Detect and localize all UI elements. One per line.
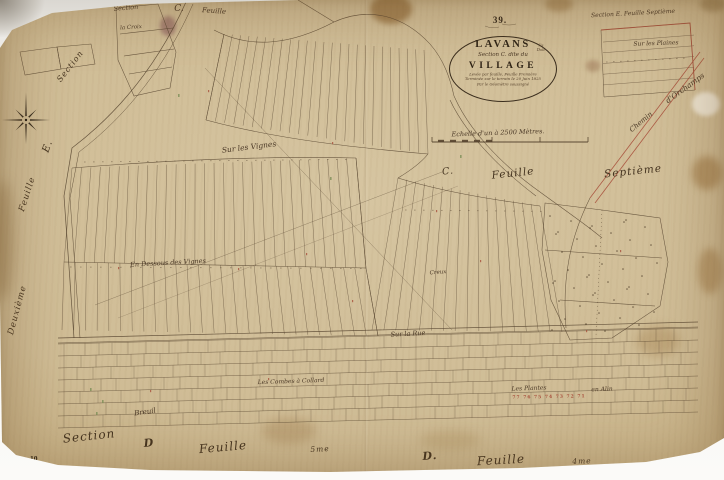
place-name: VILLAGE xyxy=(450,62,556,72)
plate-number: 10 xyxy=(30,454,38,463)
placename-sur-les-vignes: Sur les Vignes xyxy=(221,139,276,155)
placename-en-dessous-des-vignes: En Dessous des Vignes xyxy=(130,257,206,268)
parcel-numbers-red: 77 76 75 74 73 72 71 xyxy=(512,394,585,400)
placename-la-croix: la Croix xyxy=(120,23,142,31)
placename-les-plantes: Les Plantes xyxy=(511,384,546,392)
neighbor-sheet-left-feuille: Feuille xyxy=(17,175,38,212)
placename-creux: Creux xyxy=(429,268,446,276)
placename-en-alin: en Alin xyxy=(591,385,613,393)
neighbor-sheet-top-c: C. xyxy=(174,3,183,14)
neighbor-sheet-bottom-left-feuille: Feuille xyxy=(198,438,247,456)
neighbor-sheet-mid-septieme: Septième xyxy=(603,162,662,180)
neighbor-sheet-bottom-right-d: D. xyxy=(422,449,438,463)
cartouche-notes: Levée par feuille, Feuille Première Term… xyxy=(455,72,551,87)
neighbor-sheet-bottom-right-4me: 4me xyxy=(572,456,592,466)
neighbor-sheet-left-e: E. xyxy=(39,138,55,154)
placename-les-combes-a-collard: Les Combes à Collard xyxy=(258,376,325,385)
neighbor-sheet-bottom-left-d: D xyxy=(143,436,155,450)
neighbor-sheet-bottom-left-section: Section xyxy=(62,426,116,445)
paper-sheet: SectionC.FeuilleSection E. Feuille Septi… xyxy=(0,0,724,480)
commune-name: LAVANS lès Dole xyxy=(450,40,556,51)
map-label-layer: SectionC.FeuilleSection E. Feuille Septi… xyxy=(0,0,724,480)
neighbor-sheet-top-feuille: Feuille xyxy=(202,6,226,16)
sheet-number: 39. xyxy=(493,15,507,25)
commune-name-text: LAVANS xyxy=(475,39,530,50)
neighbor-sheet-mid-feuille: Feuille xyxy=(491,165,535,181)
placename-breuil: Breuil xyxy=(134,407,157,418)
neighbor-sheet-bottom-right-feuille: Feuille xyxy=(477,452,526,468)
neighbor-sheet-left-section: Section xyxy=(55,48,86,83)
neighbor-sheet-top-right: Section E. Feuille Septième xyxy=(591,7,675,18)
neighbor-sheet-mid-c: C. xyxy=(441,165,454,177)
road-label-chemin: Chemin xyxy=(628,110,654,134)
neighbor-sheet-bottom-left-5me: 5me xyxy=(310,444,330,454)
neighbor-sheet-top-section: Section xyxy=(113,3,138,13)
title-cartouche: LAVANS lès Dole Section C. dite du VILLA… xyxy=(449,36,557,102)
section-line: Section C. dite du xyxy=(474,52,532,58)
cadastral-map-scan: SectionC.FeuilleSection E. Feuille Septi… xyxy=(0,0,724,480)
road-label-orchamps: d'Orchamps xyxy=(664,71,706,105)
placename-sur-les-plaines: Sur les Plaines xyxy=(633,39,678,48)
neighbor-sheet-left-deuxieme: Deuxième xyxy=(6,284,29,336)
cartouche-note-line: Par le Géomètre soussigné xyxy=(455,82,551,87)
commune-note: lès Dole xyxy=(536,43,546,52)
placename-sur-la-rue: Sur la Rue xyxy=(390,329,425,338)
